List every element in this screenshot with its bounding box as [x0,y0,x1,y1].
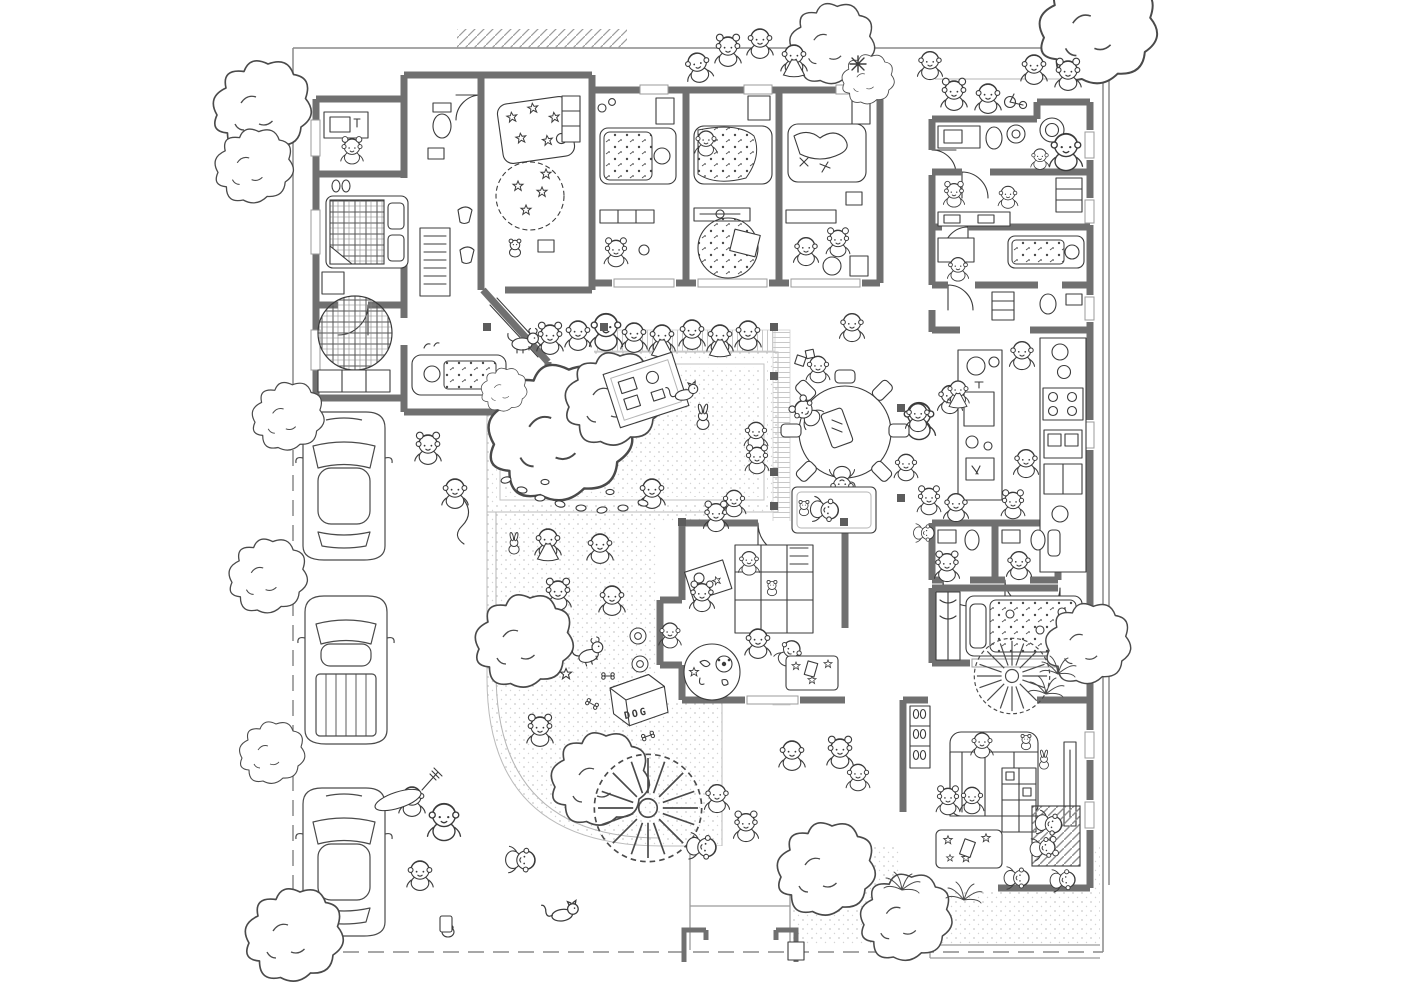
ball [823,257,841,275]
cat-running [542,900,580,923]
target-toy [632,656,648,672]
sink [1002,530,1020,543]
star-mat [786,656,838,690]
toy-bag [440,916,452,932]
target-toy [630,628,646,644]
pillow-2 [388,235,404,261]
parking-lane [296,412,469,936]
sink-counter [324,112,368,138]
toilet [986,127,1002,149]
double-sink-counter [938,212,1010,226]
pillow-1 [388,203,404,229]
child-figure [917,51,942,79]
toilet [1031,530,1045,550]
small-sink [1066,294,1082,305]
child-figure [839,313,864,341]
nap-quilt [1012,240,1064,264]
rake [422,768,442,790]
tree [215,129,293,203]
star-rug [936,830,1002,868]
child-figure [747,29,773,59]
pillow [970,604,986,648]
plant-splat [850,56,866,72]
cubby [748,96,770,120]
child-figure [415,432,441,464]
slipper [332,180,340,192]
bush [777,823,875,915]
child-figure [682,50,714,84]
toilet [433,114,451,138]
bottle [1048,530,1060,556]
teddy-bear [767,580,777,595]
washer [1007,125,1025,143]
shelf [992,292,1014,320]
paint-rug [684,644,740,700]
child-figure [1021,55,1047,85]
child-with-streamer [442,479,468,509]
floor-plan-drawing: DOG [0,0,1413,1000]
tree [245,889,343,981]
island-counter [958,350,1002,500]
teddy-bear [799,500,809,515]
coat-rack [420,228,450,296]
ball [639,245,649,255]
slipper [342,180,350,192]
toy-block [795,355,806,366]
nightstand [322,272,344,294]
tree [240,722,305,784]
toy-box [538,240,554,252]
tree [475,595,573,687]
stove [1043,388,1083,420]
child-figure [806,356,830,383]
sleeping-child [1065,245,1079,259]
chair [781,424,801,437]
tall-child-figure [428,804,461,841]
toilet-tank [433,103,451,112]
quilt [604,132,652,180]
low-shelf [786,210,836,223]
cubby-shelf [562,96,580,142]
sink [938,530,956,543]
child-figure [407,861,433,891]
child-figure [779,741,805,771]
headboard-shelf [656,98,674,124]
child-figure [827,736,853,768]
toilet [965,530,979,550]
child-figure [715,34,741,66]
small-sink [428,148,444,159]
chair [835,370,855,383]
round-plaid-rug [318,296,392,370]
gate-box [788,942,804,960]
bush [481,368,527,411]
teddy-bear [1021,734,1031,749]
floor-plan-canvas: DOG [0,0,1413,1000]
toy-block [805,349,814,358]
round-star-rug [496,162,564,230]
locker [1056,178,1082,212]
sleeping-child [654,148,670,164]
toy-mat [850,256,868,276]
toilet [1040,294,1056,314]
tree [229,539,307,613]
tree [842,55,894,104]
toy-box [846,192,862,205]
sleeping-baby [424,366,440,382]
low-shelf [600,210,654,223]
tree [551,733,649,825]
road-hatching [457,29,627,48]
child-figure [733,811,758,842]
car-pickup [298,596,394,744]
child-figure [846,764,870,791]
teddy-bear [509,239,521,257]
shoe-shelf [318,370,390,392]
tree [252,382,324,450]
child-lying [505,846,536,873]
